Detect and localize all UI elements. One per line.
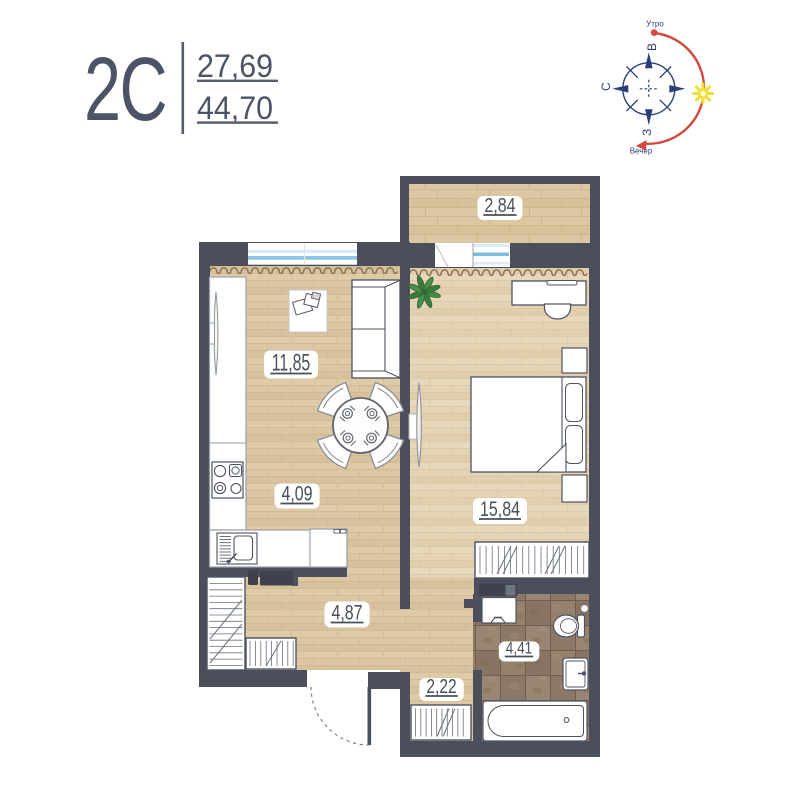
svg-text:2,22: 2,22 xyxy=(426,675,456,697)
svg-text:44,70: 44,70 xyxy=(197,90,273,126)
svg-text:В: В xyxy=(645,43,659,51)
svg-text:4,87: 4,87 xyxy=(331,600,362,624)
svg-text:4,09: 4,09 xyxy=(281,481,312,505)
svg-text:4,41: 4,41 xyxy=(506,639,532,658)
svg-text:С: С xyxy=(599,82,613,91)
svg-text:27,69: 27,69 xyxy=(197,48,273,84)
svg-text:2C: 2C xyxy=(84,38,166,139)
svg-text:З: З xyxy=(640,129,654,136)
svg-text:Утро: Утро xyxy=(646,20,664,29)
svg-text:2,84: 2,84 xyxy=(484,194,515,216)
svg-text:Вечер: Вечер xyxy=(630,147,653,156)
svg-text:11,85: 11,85 xyxy=(272,350,310,376)
svg-text:15,84: 15,84 xyxy=(480,497,520,521)
